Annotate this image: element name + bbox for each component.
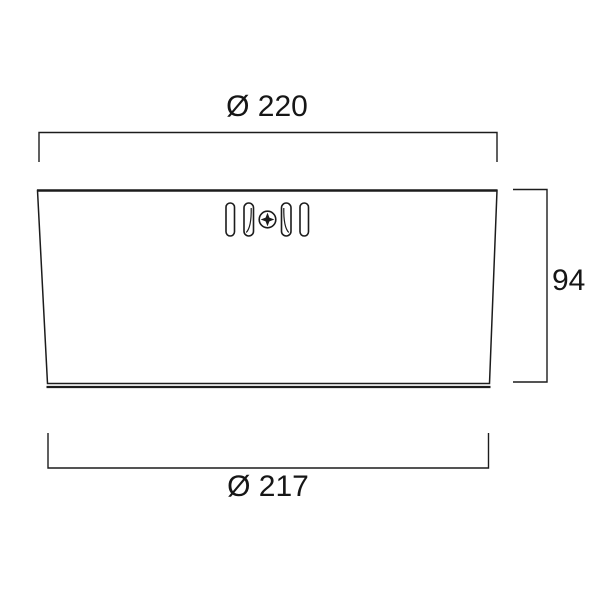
top-dimension-bracket [39,133,497,163]
top-diameter-label: Ø 220 [37,92,497,122]
vent-slot [226,203,235,236]
vent-slot [300,203,309,236]
vent-slot [244,203,254,236]
height-dimension-bracket [513,190,547,383]
vent-slot-inner-curve [284,208,289,233]
dimension-drawing: Ø 220 94 Ø 217 [0,0,600,600]
vent-slot-inner-curve [246,208,251,233]
height-label: 94 [552,266,585,296]
vent-slot [282,203,292,236]
bottom-dimension-bracket [48,433,489,468]
bottom-diameter-label: Ø 217 [48,472,488,502]
phillips-screw-icon [259,211,276,228]
